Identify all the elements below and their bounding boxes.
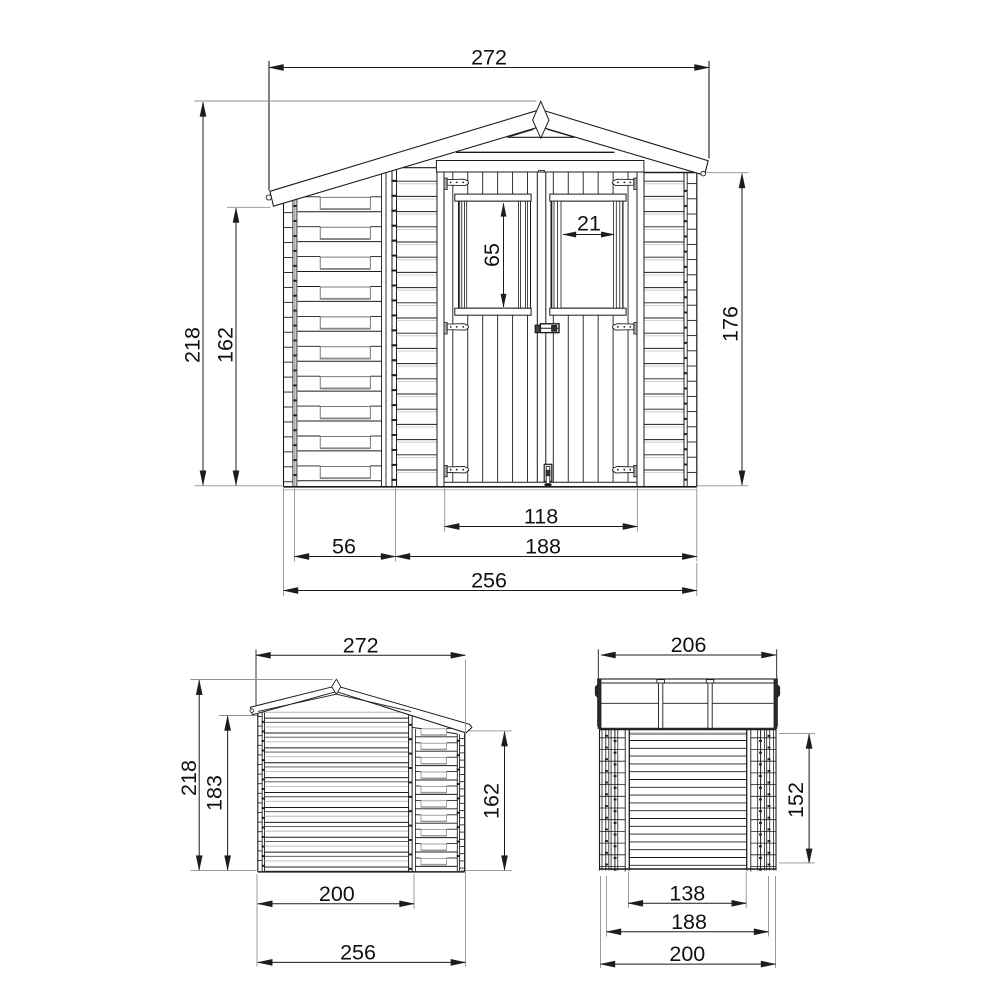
svg-text:188: 188 <box>525 535 561 559</box>
svg-text:256: 256 <box>471 569 507 593</box>
svg-text:188: 188 <box>671 910 707 934</box>
svg-text:162: 162 <box>480 783 504 819</box>
svg-text:65: 65 <box>480 243 504 267</box>
svg-text:56: 56 <box>332 535 356 559</box>
svg-text:176: 176 <box>719 306 743 342</box>
svg-text:162: 162 <box>214 327 238 363</box>
svg-text:206: 206 <box>671 633 707 657</box>
svg-text:272: 272 <box>343 633 379 657</box>
svg-text:118: 118 <box>524 505 558 529</box>
svg-text:272: 272 <box>471 46 507 70</box>
svg-text:21: 21 <box>577 212 601 236</box>
svg-text:183: 183 <box>203 775 227 811</box>
svg-text:256: 256 <box>340 940 376 964</box>
svg-text:200: 200 <box>319 882 355 906</box>
svg-text:218: 218 <box>181 327 205 363</box>
svg-text:200: 200 <box>669 942 705 966</box>
svg-text:218: 218 <box>177 760 201 796</box>
svg-text:152: 152 <box>784 782 808 818</box>
svg-text:138: 138 <box>669 881 705 905</box>
